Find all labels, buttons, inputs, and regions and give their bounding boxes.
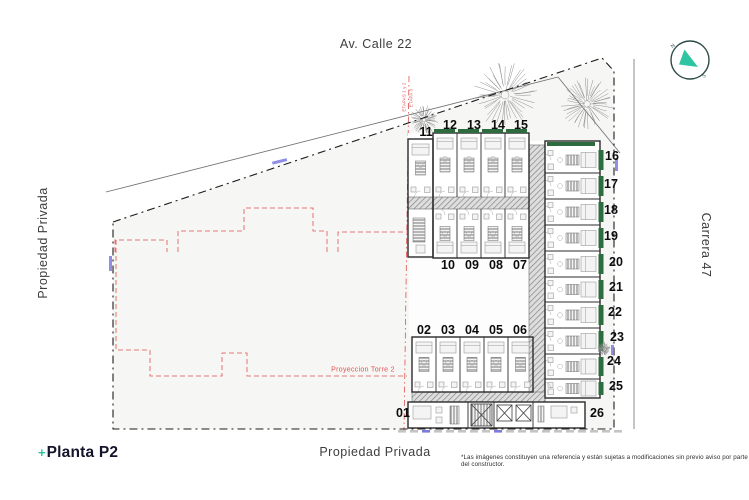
street-label-bottom: Propiedad Privada [319,445,430,459]
unit-number-24: 24 [607,354,621,368]
unit-number-04: 04 [465,323,479,337]
unit-number-22: 22 [608,305,622,319]
street-label-left: Propiedad Privada [36,187,50,298]
unit-number-19: 19 [604,229,618,243]
compass-s: S [701,72,708,79]
street-label-right: Carrera 47 [699,213,713,278]
unit-number-12: 12 [443,118,457,132]
unit-number-03: 03 [441,323,455,337]
unit-number-11: 11 [419,125,432,139]
unit-number-23: 23 [610,330,624,344]
unit-number-25: 25 [609,379,623,393]
street-label-top: Av. Calle 22 [340,37,412,51]
unit-number-05: 05 [489,323,503,337]
compass: N S [670,41,709,80]
unit-number-15: 15 [514,118,528,132]
unit-number-20: 20 [609,255,623,269]
sidewalk-ticks [398,430,622,433]
disclaimer-text: *Las imágenes constituyen una referencia… [461,454,749,468]
phase-label-left: ETAPAS 1 y 2 [402,82,407,111]
unit-number-09: 09 [465,258,479,272]
unit-number-10: 10 [441,258,455,272]
unit-number-17: 17 [604,177,618,191]
unit-number-08: 08 [489,258,503,272]
unit-number-16: 16 [605,149,619,163]
plan-title-text: Planta P2 [47,444,119,462]
unit-number-07: 07 [513,258,527,272]
unit-number-02: 02 [417,323,431,337]
floor-plan-page: N S Av. Calle 22 Propiedad Privada Carre… [0,0,749,500]
unit-number-26: 26 [590,406,604,420]
unit-number-21: 21 [609,280,623,294]
unit-number-06: 06 [513,323,527,337]
phase-label-right: ETAPA 3 [409,89,414,107]
plus-icon: + [38,445,46,460]
unit-number-14: 14 [491,118,505,132]
unit-number-18: 18 [604,203,618,217]
site-plan-svg: N S [0,0,749,500]
unit-number-01: 01 [396,406,410,420]
projection-label: Proyeccion Torre 2 [331,367,395,374]
unit-number-13: 13 [467,118,481,132]
plan-title: + Planta P2 [38,444,118,462]
